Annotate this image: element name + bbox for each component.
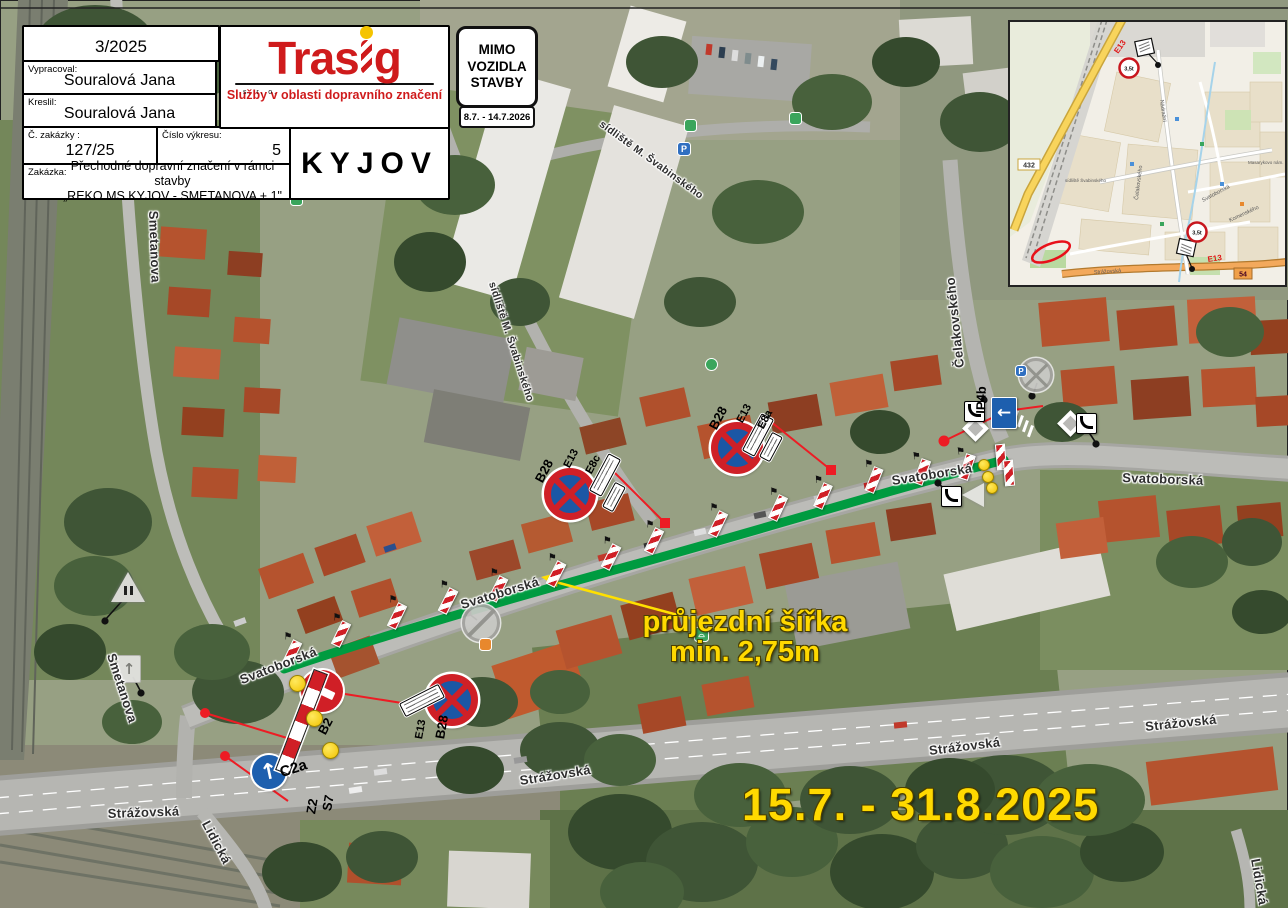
sign-b28-no-stopping — [544, 468, 596, 520]
trasig-wordmark: Trasg — [221, 35, 448, 81]
drawingno-value: 5 — [272, 142, 281, 160]
titleblock-project-cell: Zakázka: Přechodné dopravní značení v rá… — [22, 163, 291, 200]
traffic-plan-canvas: ↑ ← ↑ P P ⌓ Smetanova Smetanova sídliště… — [0, 0, 1288, 908]
svg-text:Strážovská: Strážovská — [1094, 268, 1122, 276]
mimo-line3: STAVBY — [467, 75, 526, 92]
parking-icon: P — [678, 143, 690, 155]
street-label: Svatoborská — [1122, 470, 1204, 488]
order-value: 127/25 — [24, 142, 156, 160]
map-poi-icon — [480, 639, 491, 650]
author-value: Souralová Jana — [24, 72, 215, 90]
mimo-vozidla-stavby-sign: MIMO VOZIDLA STAVBY — [456, 26, 538, 108]
sign-ip4b-one-way: ← — [991, 397, 1017, 429]
clearance-annotation: průjezdní šířka min. 2,75m — [600, 608, 890, 667]
clearance-line2: min. 2,75m — [600, 638, 890, 668]
mimo-sign-dates: 8.7. - 14.7.2026 — [459, 106, 535, 128]
project-line2: „REKO MS KYJOV - SMETANOVA + 1" — [58, 189, 287, 204]
clearance-line1: průjezdní šířka — [600, 608, 890, 638]
map-poi-icon — [706, 359, 717, 370]
sign-code-label: S7 — [319, 794, 337, 812]
e2b-priority-course-panel — [1076, 413, 1097, 434]
s7-warning-lamp — [322, 742, 339, 759]
mimo-line2: VOZIDLA — [467, 59, 526, 76]
titleblock-date-cell: 3/2025 — [22, 25, 220, 62]
sign-code-label: Z2 — [303, 797, 320, 815]
svg-text:sídliště Švabinského: sídliště Švabinského — [1065, 177, 1107, 183]
mimo-line1: MIMO — [467, 42, 526, 59]
inset-map-graphics: 432 54 3,5t 3,5t E13 E13 Nádražní Čelako… — [1010, 22, 1285, 285]
map-poi-icon — [790, 113, 801, 124]
drawingno-label: Číslo výkresu: — [162, 130, 222, 141]
map-poi-icon — [685, 120, 696, 131]
p4-give-way-sign-faded — [962, 483, 984, 507]
inset-overview-map: 432 54 3,5t 3,5t E13 E13 Nádražní Čelako… — [1008, 20, 1287, 287]
s7-warning-lamp — [986, 482, 998, 494]
z2-barrier-segment — [1003, 460, 1015, 487]
a12-pedestrian-warning-sign-faded — [111, 572, 145, 602]
street-label: Smetanova — [146, 210, 164, 283]
weight-limit-text: 3,5t — [1192, 231, 1202, 237]
route-shield-432-text: 432 — [1023, 163, 1035, 170]
svg-text:Masarykovo nám.: Masarykovo nám. — [1248, 160, 1284, 165]
weight-limit-text: 3,5t — [1124, 67, 1134, 73]
route-shield-54-text: 54 — [1239, 272, 1247, 279]
trasig-sro: s. r. o. — [243, 89, 278, 96]
drawer-value: Souralová Jana — [24, 105, 215, 123]
street-label: Strážovská — [107, 804, 179, 821]
sign-code-label: IP4b — [973, 386, 989, 414]
trasig-logo: Trasg s. r. o. Služby v oblasti dopravní… — [219, 25, 450, 129]
closure-period: 15.7. - 31.8.2025 — [742, 782, 1099, 828]
s7-warning-lamp — [289, 675, 306, 692]
parking-icon: P — [1016, 366, 1026, 376]
barber-pole-i-icon — [361, 40, 372, 74]
order-label: Č. zakázky : — [28, 130, 80, 141]
s7-warning-lamp — [978, 459, 990, 471]
titleblock-author-cell: Vypracoval: Souralová Jana — [22, 60, 217, 95]
city-title: KYJOV — [289, 127, 450, 200]
titleblock-date: 3/2025 — [24, 37, 218, 57]
e2b-priority-course-panel — [941, 486, 962, 507]
titleblock-drawer-cell: Kreslil: Souralová Jana — [22, 93, 217, 128]
project-line1: Přechodné dopravní značení v rámci stavb… — [58, 159, 287, 189]
